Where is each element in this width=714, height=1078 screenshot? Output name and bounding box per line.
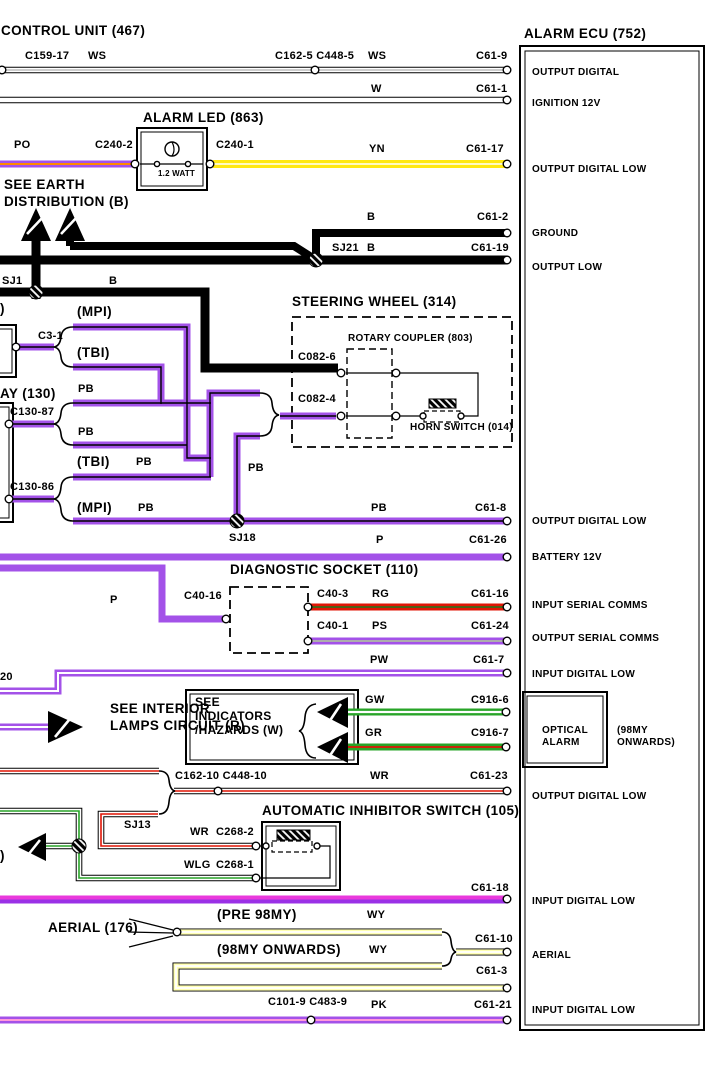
fn-aerial: AERIAL [532,951,571,961]
pin-c3-1: C3-1 [38,331,63,342]
pin-c268-2: C268-2 [216,827,254,838]
pin-c130-86: C130-86 [10,482,54,493]
fn-output-digital: OUTPUT DIGITAL [532,68,619,78]
pin-c61-24: C61-24 [471,621,509,632]
wire-code-mpi: (MPI) [77,305,112,319]
fn-input-digital-low-3: INPUT DIGITAL LOW [532,1006,635,1016]
connector-cut-20: 20 [0,672,13,683]
wire-code-wy: WY [367,910,385,921]
splice-sj21: SJ21 [332,243,359,254]
pin-c082-4: C082-4 [298,394,336,405]
pin-c61-26: C61-26 [469,535,507,546]
connector-c101: C101-9 C483-9 [268,997,347,1008]
wire-code-pb: PB [248,463,264,474]
fn-battery-12v: BATTERY 12V [532,553,602,563]
fn-input-serial: INPUT SERIAL COMMS [532,601,648,611]
indicators-arrow-icons [317,697,348,763]
horn-switch-symbol [420,399,464,422]
optical-alarm-note1: (98MY [617,726,648,736]
splice-sj13: SJ13 [124,820,151,831]
wire-code-pb: PB [78,427,94,438]
wire-code-wlg: WLG [184,860,211,871]
fn-output-serial: OUTPUT SERIAL COMMS [532,634,659,644]
pin-c61-1: C61-1 [476,84,507,95]
pin-c916-6: C916-6 [471,695,509,706]
aerial-title: AERIAL (176) [48,921,138,935]
led-rating: 1.2 WATT [158,170,195,178]
wire-code-b: B [367,212,375,223]
pin-c61-16: C61-16 [471,589,509,600]
wire-code-ws: WS [368,51,386,62]
earth-ref-line2: DISTRIBUTION (B) [4,195,129,209]
earth-arrow-icon [21,208,85,241]
inhibitor-switch-symbol [263,830,320,852]
indicators-ref-line2: INDICATORS [195,710,272,722]
wire-wy [176,932,508,988]
wire-code-pw: PW [370,655,388,666]
ecu-box [520,46,704,1030]
horn-switch-title: HORN SWITCH (014) [410,423,513,433]
wire-code-rg: RG [372,589,389,600]
earth-ref-line1: SEE EARTH [4,178,85,192]
wire-code-b: B [367,243,375,254]
wire-code-gr: GR [365,728,382,739]
wire-code-ws: WS [88,51,106,62]
wire-code-pb: PB [136,457,152,468]
splice-sj1: SJ1 [2,276,22,287]
fn-output-digital-low-1: OUTPUT DIGITAL LOW [532,165,646,175]
wire-code-wy: WY [369,945,387,956]
diagram-graphics [0,0,714,1078]
wire-code-pk: PK [371,1000,387,1011]
pin-c40-16: C40-16 [184,591,222,602]
pin-c61-21: C61-21 [474,1000,512,1011]
cut-paren-2: ) [0,302,5,316]
sj13-ref-arrow-icon [18,833,46,861]
pin-c082-6: C082-6 [298,352,336,363]
wire-code-tbi: (TBI) [77,455,110,469]
braces [54,327,456,966]
wire-code-p: P [376,535,384,546]
pin-c268-1: C268-1 [216,860,254,871]
wire-code-b: B [109,276,117,287]
ecu-title: ALARM ECU (752) [524,27,646,41]
c3-component-box [0,325,16,377]
wire-code-mpi: (MPI) [77,501,112,515]
pin-c61-7: C61-7 [473,655,504,666]
wire-code-gw: GW [365,695,385,706]
diagnostic-socket-box [230,587,308,653]
optical-alarm-line2: ALARM [542,738,580,748]
wire-magenta [0,898,508,902]
wire-code-pb: PB [371,503,387,514]
pin-c61-10: C61-10 [475,934,513,945]
pin-c61-19: C61-19 [471,243,509,254]
interior-lamps-arrow-icon [48,711,83,743]
pin-c61-2: C61-2 [477,212,508,223]
pin-c40-3: C40-3 [317,589,348,600]
diagnostic-socket-title: DIAGNOSTIC SOCKET (110) [230,563,418,577]
connector-c162-5: C162-5 C448-5 [275,51,354,62]
inhibitor-circuit-lines [258,846,330,878]
pin-c61-3: C61-3 [476,966,507,977]
fn-output-low: OUTPUT LOW [532,263,602,273]
pin-c61-9: C61-9 [476,51,507,62]
pin-c61-23: C61-23 [470,771,508,782]
rotary-coupler-title: ROTARY COUPLER (803) [348,334,473,344]
relay-title: AY (130) [0,387,56,401]
pin-c240-1: C240-1 [216,140,254,151]
fn-input-digital-low-2: INPUT DIGITAL LOW [532,897,635,907]
pin-c130-87: C130-87 [10,407,54,418]
connector-c159: C159-17 [25,51,69,62]
pin-c240-2: C240-2 [95,140,133,151]
pin-c61-18: C61-18 [471,883,509,894]
wire-code-ps: PS [372,621,387,632]
fn-ground: GROUND [532,229,578,239]
pin-c61-8: C61-8 [475,503,506,514]
alarm-led-title: ALARM LED (863) [143,111,264,125]
wire-code-p: P [110,595,118,606]
pin-c916-7: C916-7 [471,728,509,739]
wire-code-pb: PB [138,503,154,514]
alarm-led-box [137,128,207,190]
indicators-ref-line3: /HAZARDS (W) [195,724,283,736]
rotary-coupler-box [347,349,392,438]
pin-c40-1: C40-1 [317,621,348,632]
wire-code-w: W [371,84,382,95]
optical-alarm-line1: OPTICAL [542,726,588,736]
wire-code-po: PO [14,140,31,151]
optical-alarm-note2: ONWARDS) [617,738,675,748]
led-bulb-icon [154,142,190,167]
control-unit-title: CONTROL UNIT (467) [1,24,145,38]
wire-code-tbi: (TBI) [77,346,110,360]
wire-code-yn: YN [369,144,385,155]
aerial-onwards-label: (98MY ONWARDS) [217,943,341,957]
wire-code-wr: WR [190,827,209,838]
fn-ignition-12v: IGNITION 12V [532,99,601,109]
wire-code-pb: PB [78,384,94,395]
fn-input-digital-low-1: INPUT DIGITAL LOW [532,670,635,680]
inhibitor-title: AUTOMATIC INHIBITOR SWITCH (105) [262,804,519,818]
splice-sj18: SJ18 [229,533,256,544]
pin-c61-17: C61-17 [466,144,504,155]
connector-c162-10: C162-10 C448-10 [175,771,267,782]
wiring-diagram: CONTROL UNIT (467) C159-17 WS C162-5 C44… [0,0,714,1078]
wire-code-wr: WR [370,771,389,782]
indicators-ref-line1: SEE [195,696,220,708]
cut-paren: ) [0,849,5,863]
steering-wheel-title: STEERING WHEEL (314) [292,295,457,309]
fn-output-digital-low-2: OUTPUT DIGITAL LOW [532,517,646,527]
fn-output-digital-low-3: OUTPUT DIGITAL LOW [532,792,646,802]
aerial-pre-label: (PRE 98MY) [217,908,297,922]
horn-circuit-lines [346,373,478,416]
